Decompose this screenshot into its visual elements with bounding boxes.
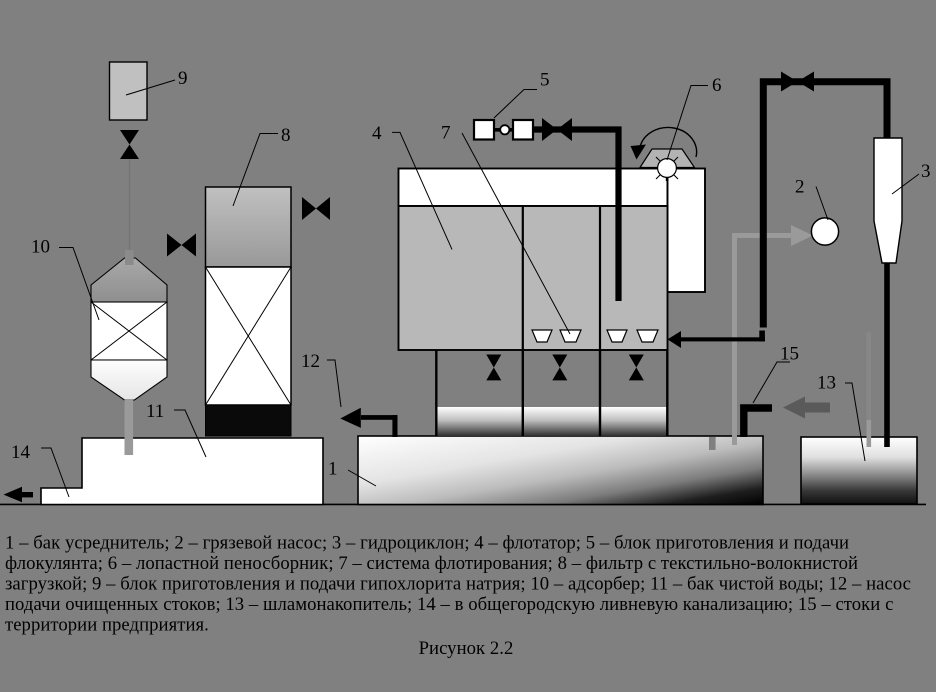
svg-text:подачи очищенных стоков; 13 –: подачи очищенных стоков; 13 – шламонакоп… — [5, 594, 893, 615]
svg-text:флокулянта; 6 – лопастной пено: флокулянта; 6 – лопастной пеносборник; 7… — [5, 553, 858, 574]
svg-text:2: 2 — [795, 177, 805, 198]
svg-text:Рисунок 2.2: Рисунок 2.2 — [419, 638, 514, 659]
svg-text:10: 10 — [31, 237, 50, 258]
svg-text:7: 7 — [441, 123, 451, 144]
svg-text:4: 4 — [372, 123, 382, 144]
svg-text:3: 3 — [921, 161, 931, 182]
svg-text:5: 5 — [540, 70, 550, 91]
svg-text:территории предприятия.: территории предприятия. — [5, 615, 209, 636]
svg-text:1 – бак усреднитель; 2 – грязе: 1 – бак усреднитель; 2 – грязевой насос;… — [5, 533, 849, 554]
svg-text:12: 12 — [301, 351, 320, 372]
svg-text:15: 15 — [780, 344, 799, 365]
svg-text:1: 1 — [328, 459, 338, 480]
svg-text:загрузкой; 9 – блок приготовле: загрузкой; 9 – блок приготовления и пода… — [5, 574, 911, 595]
svg-text:14: 14 — [11, 442, 31, 463]
svg-text:11: 11 — [146, 401, 164, 422]
svg-text:8: 8 — [281, 125, 291, 146]
svg-text:6: 6 — [712, 75, 722, 96]
svg-text:13: 13 — [817, 373, 836, 394]
svg-text:9: 9 — [178, 68, 188, 89]
